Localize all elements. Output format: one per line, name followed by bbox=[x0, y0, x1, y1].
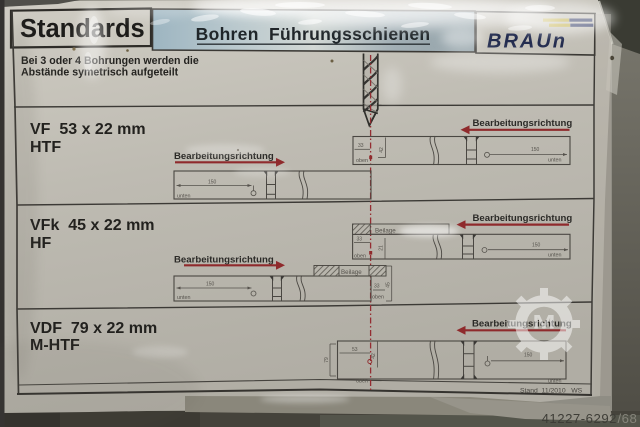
svg-text:45: 45 bbox=[386, 282, 392, 288]
svg-text:150: 150 bbox=[208, 180, 217, 186]
svg-text:21: 21 bbox=[379, 245, 385, 251]
svg-text:150: 150 bbox=[531, 147, 540, 153]
svg-text:Bearbeitungsrichtung: Bearbeitungsrichtung bbox=[174, 255, 274, 266]
svg-text:Bei 3 oder 4 Bohrungen werden: Bei 3 oder 4 Bohrungen werden die bbox=[21, 55, 199, 67]
svg-text:42: 42 bbox=[371, 353, 377, 359]
svg-text:33: 33 bbox=[374, 284, 380, 290]
svg-text:VF 53 x 22 mm: VF 53 x 22 mm bbox=[30, 121, 146, 138]
svg-text:33: 33 bbox=[357, 236, 363, 242]
svg-text:150: 150 bbox=[532, 242, 541, 248]
svg-text:Bearbeitungsrichtung: Bearbeitungsrichtung bbox=[473, 118, 573, 129]
svg-text:M: M bbox=[533, 312, 556, 333]
svg-text:unten: unten bbox=[177, 295, 191, 301]
svg-text:unten: unten bbox=[548, 158, 562, 164]
svg-text:Beilage: Beilage bbox=[341, 269, 362, 276]
svg-text:41227-6292: 41227-6292 bbox=[542, 411, 617, 426]
svg-text:oben: oben bbox=[356, 379, 368, 385]
svg-text:79: 79 bbox=[324, 357, 330, 363]
svg-text:unten: unten bbox=[548, 252, 562, 258]
svg-text:VDF 79 x 22 mm: VDF 79 x 22 mm bbox=[30, 320, 157, 337]
svg-text:unten: unten bbox=[548, 378, 562, 384]
svg-text:42: 42 bbox=[379, 147, 385, 153]
svg-text:Bearbeitungsrichtung: Bearbeitungsrichtung bbox=[473, 213, 573, 224]
svg-text:Beilage: Beilage bbox=[375, 227, 396, 234]
svg-text:oben: oben bbox=[356, 158, 368, 164]
svg-text:VFk 45 x 22 mm: VFk 45 x 22 mm bbox=[30, 217, 155, 234]
svg-text:53: 53 bbox=[352, 347, 358, 353]
svg-text:150: 150 bbox=[524, 353, 533, 359]
svg-text:33: 33 bbox=[358, 143, 364, 149]
svg-text:150: 150 bbox=[206, 282, 215, 288]
svg-text:unten: unten bbox=[177, 194, 191, 200]
svg-text:oben: oben bbox=[372, 295, 384, 301]
svg-text:/68: /68 bbox=[618, 411, 638, 426]
svg-text:oben: oben bbox=[354, 254, 366, 260]
svg-text:Stand 11/2010 WS: Stand 11/2010 WS bbox=[520, 388, 583, 395]
